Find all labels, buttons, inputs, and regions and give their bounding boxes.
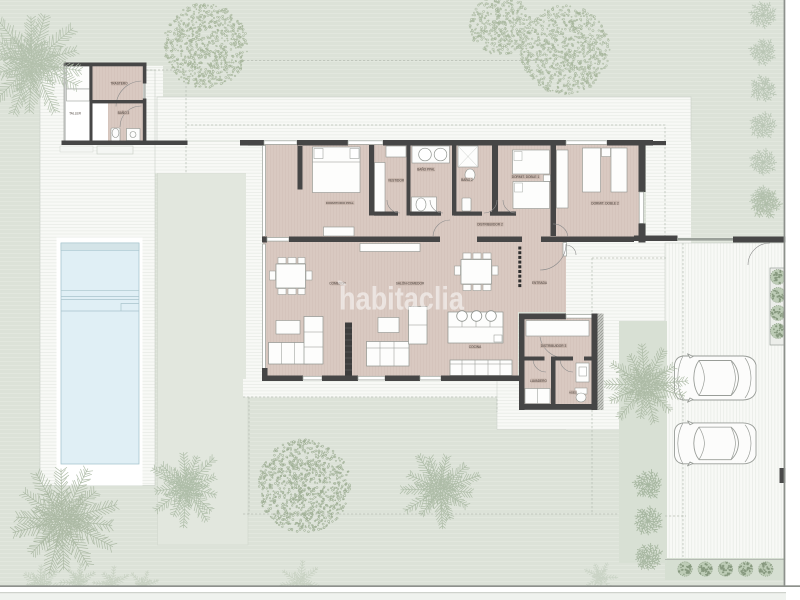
svg-text:TRASTERO: TRASTERO: [110, 82, 128, 86]
svg-text:DISTRIBUIDOR 3: DISTRIBUIDOR 3: [541, 344, 567, 348]
svg-text:ENTRADA: ENTRADA: [532, 281, 548, 285]
svg-text:ASEO: ASEO: [569, 391, 578, 395]
svg-text:TALLER: TALLER: [69, 112, 82, 116]
svg-text:DORMIT. DOBLE 2: DORMIT. DOBLE 2: [591, 201, 619, 205]
svg-text:BAÑO PPAL: BAÑO PPAL: [417, 167, 435, 172]
svg-text:habitaclia: habitaclia: [339, 281, 464, 317]
svg-text:COCINA: COCINA: [469, 345, 482, 349]
svg-text:DORMIT. DOBLE 1: DORMIT. DOBLE 1: [512, 175, 540, 179]
svg-text:BAÑO 3: BAÑO 3: [118, 110, 130, 115]
svg-text:BAÑO 2: BAÑO 2: [461, 177, 473, 182]
svg-text:LAVADERO: LAVADERO: [530, 379, 547, 383]
svg-text:VESTIDOR: VESTIDOR: [388, 179, 405, 183]
svg-text:DISTRIBUIDOR 2: DISTRIBUIDOR 2: [477, 223, 503, 227]
svg-text:DORMITORIO PPAL.: DORMITORIO PPAL.: [326, 201, 355, 205]
